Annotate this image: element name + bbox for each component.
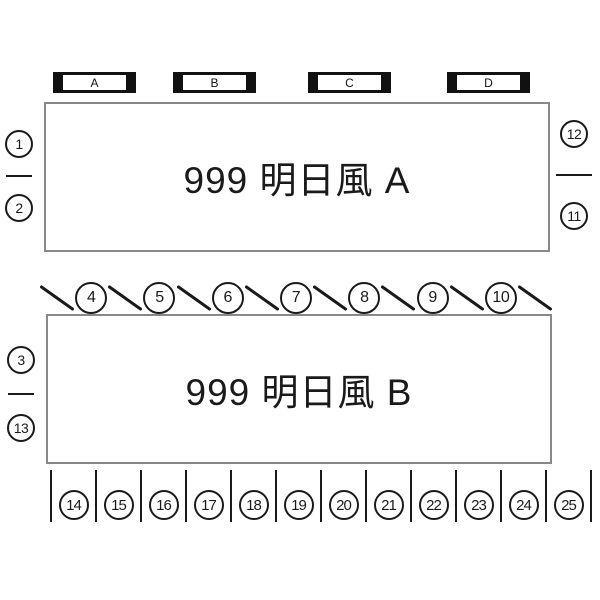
parking-divider-line [230, 470, 232, 522]
spot-number: 2 [15, 200, 22, 216]
side-spots-left-b: 3 13 [6, 346, 36, 442]
spot-number: 18 [246, 497, 261, 514]
divider-line [8, 393, 34, 395]
section-label-box: B [173, 72, 256, 93]
spot-circle: 21 [374, 490, 404, 520]
spot-number: 24 [516, 497, 531, 514]
parking-divider-line [275, 470, 277, 522]
parking-divider-line [500, 470, 502, 522]
spot-circle: 14 [59, 490, 89, 520]
building-block-b: 999 明日風 B [46, 314, 552, 464]
angled-parking-line [177, 285, 211, 311]
divider-line [556, 174, 592, 176]
spot-number: 3 [17, 352, 24, 368]
spot-circle: 10 [485, 282, 517, 314]
parking-divider-line [545, 470, 547, 522]
spot-number: 8 [360, 289, 368, 307]
parking-divider-line [410, 470, 412, 522]
spot-circle: 16 [149, 490, 179, 520]
block-a-title: 999 明日風 A [184, 150, 411, 204]
parking-divider-line [140, 470, 142, 522]
parking-divider-line [95, 470, 97, 522]
spot-number: 4 [87, 289, 95, 307]
parking-layout-diagram: A B C D 999 明日風 A 1 2 12 [0, 0, 600, 600]
spot-number: 22 [426, 497, 441, 514]
spot-circle: 20 [329, 490, 359, 520]
block-b-title: 999 明日風 B [186, 362, 413, 416]
spot-circle: 13 [7, 414, 35, 442]
spot-number: 14 [66, 497, 81, 514]
spot-number: 7 [292, 289, 300, 307]
angled-parking-line [450, 285, 484, 311]
spot-number: 5 [155, 289, 163, 307]
spot-number: 17 [201, 497, 216, 514]
side-spots-right-a: 12 11 [556, 120, 592, 230]
parking-divider-line [365, 470, 367, 522]
spot-number: 6 [224, 289, 232, 307]
spot-circle: 7 [280, 282, 312, 314]
parking-divider-line [50, 470, 52, 522]
angled-spot-row: 4 5 6 7 [40, 281, 552, 315]
section-label-text: C [318, 75, 381, 90]
angled-parking-line [245, 285, 279, 311]
section-label-box: D [447, 72, 530, 93]
spot-number: 20 [336, 497, 351, 514]
angled-parking-line [518, 285, 552, 311]
spot-circle: 5 [143, 282, 175, 314]
building-block-a: 999 明日風 A [44, 102, 550, 252]
spot-number: 25 [561, 497, 576, 514]
angled-parking-line [108, 285, 142, 311]
spot-circle: 3 [7, 346, 35, 374]
divider-line [6, 175, 32, 177]
spot-number: 9 [428, 289, 436, 307]
spot-number: 16 [156, 497, 171, 514]
spot-circle: 9 [417, 282, 449, 314]
spot-circle: 4 [75, 282, 107, 314]
spot-circle: 12 [560, 120, 588, 148]
spot-circle: 23 [464, 490, 494, 520]
angled-parking-line [313, 285, 347, 311]
angled-parking-line [40, 285, 74, 311]
angled-parking-line [381, 285, 415, 311]
spot-circle: 19 [284, 490, 314, 520]
spot-circle: 15 [104, 490, 134, 520]
section-label-box: A [53, 72, 136, 93]
parking-divider-line [185, 470, 187, 522]
spot-circle: 6 [212, 282, 244, 314]
spot-circle: 17 [194, 490, 224, 520]
spot-number: 12 [567, 126, 582, 142]
spot-number: 19 [291, 497, 306, 514]
section-label-text: A [63, 75, 126, 90]
spot-circle: 1 [5, 130, 33, 158]
spot-number: 11 [567, 208, 581, 224]
spot-number: 23 [471, 497, 486, 514]
side-spots-left-a: 1 2 [4, 130, 34, 222]
spot-circle: 18 [239, 490, 269, 520]
spot-circle: 25 [554, 490, 584, 520]
spot-circle: 8 [348, 282, 380, 314]
section-label-box: C [308, 72, 391, 93]
spot-circle: 11 [560, 202, 588, 230]
spot-circle: 24 [509, 490, 539, 520]
parking-divider-line [590, 470, 592, 522]
parking-divider-line [455, 470, 457, 522]
section-label-text: B [183, 75, 246, 90]
spot-number: 15 [111, 497, 126, 514]
spot-number: 1 [15, 136, 22, 152]
spot-number: 13 [14, 420, 29, 436]
spot-circle: 22 [419, 490, 449, 520]
parking-divider-line [320, 470, 322, 522]
bottom-spot-row: 14 15 16 17 18 19 [50, 470, 592, 522]
spot-number: 10 [492, 289, 509, 307]
spot-number: 21 [381, 497, 396, 514]
spot-circle: 2 [5, 194, 33, 222]
section-label-text: D [457, 75, 520, 90]
